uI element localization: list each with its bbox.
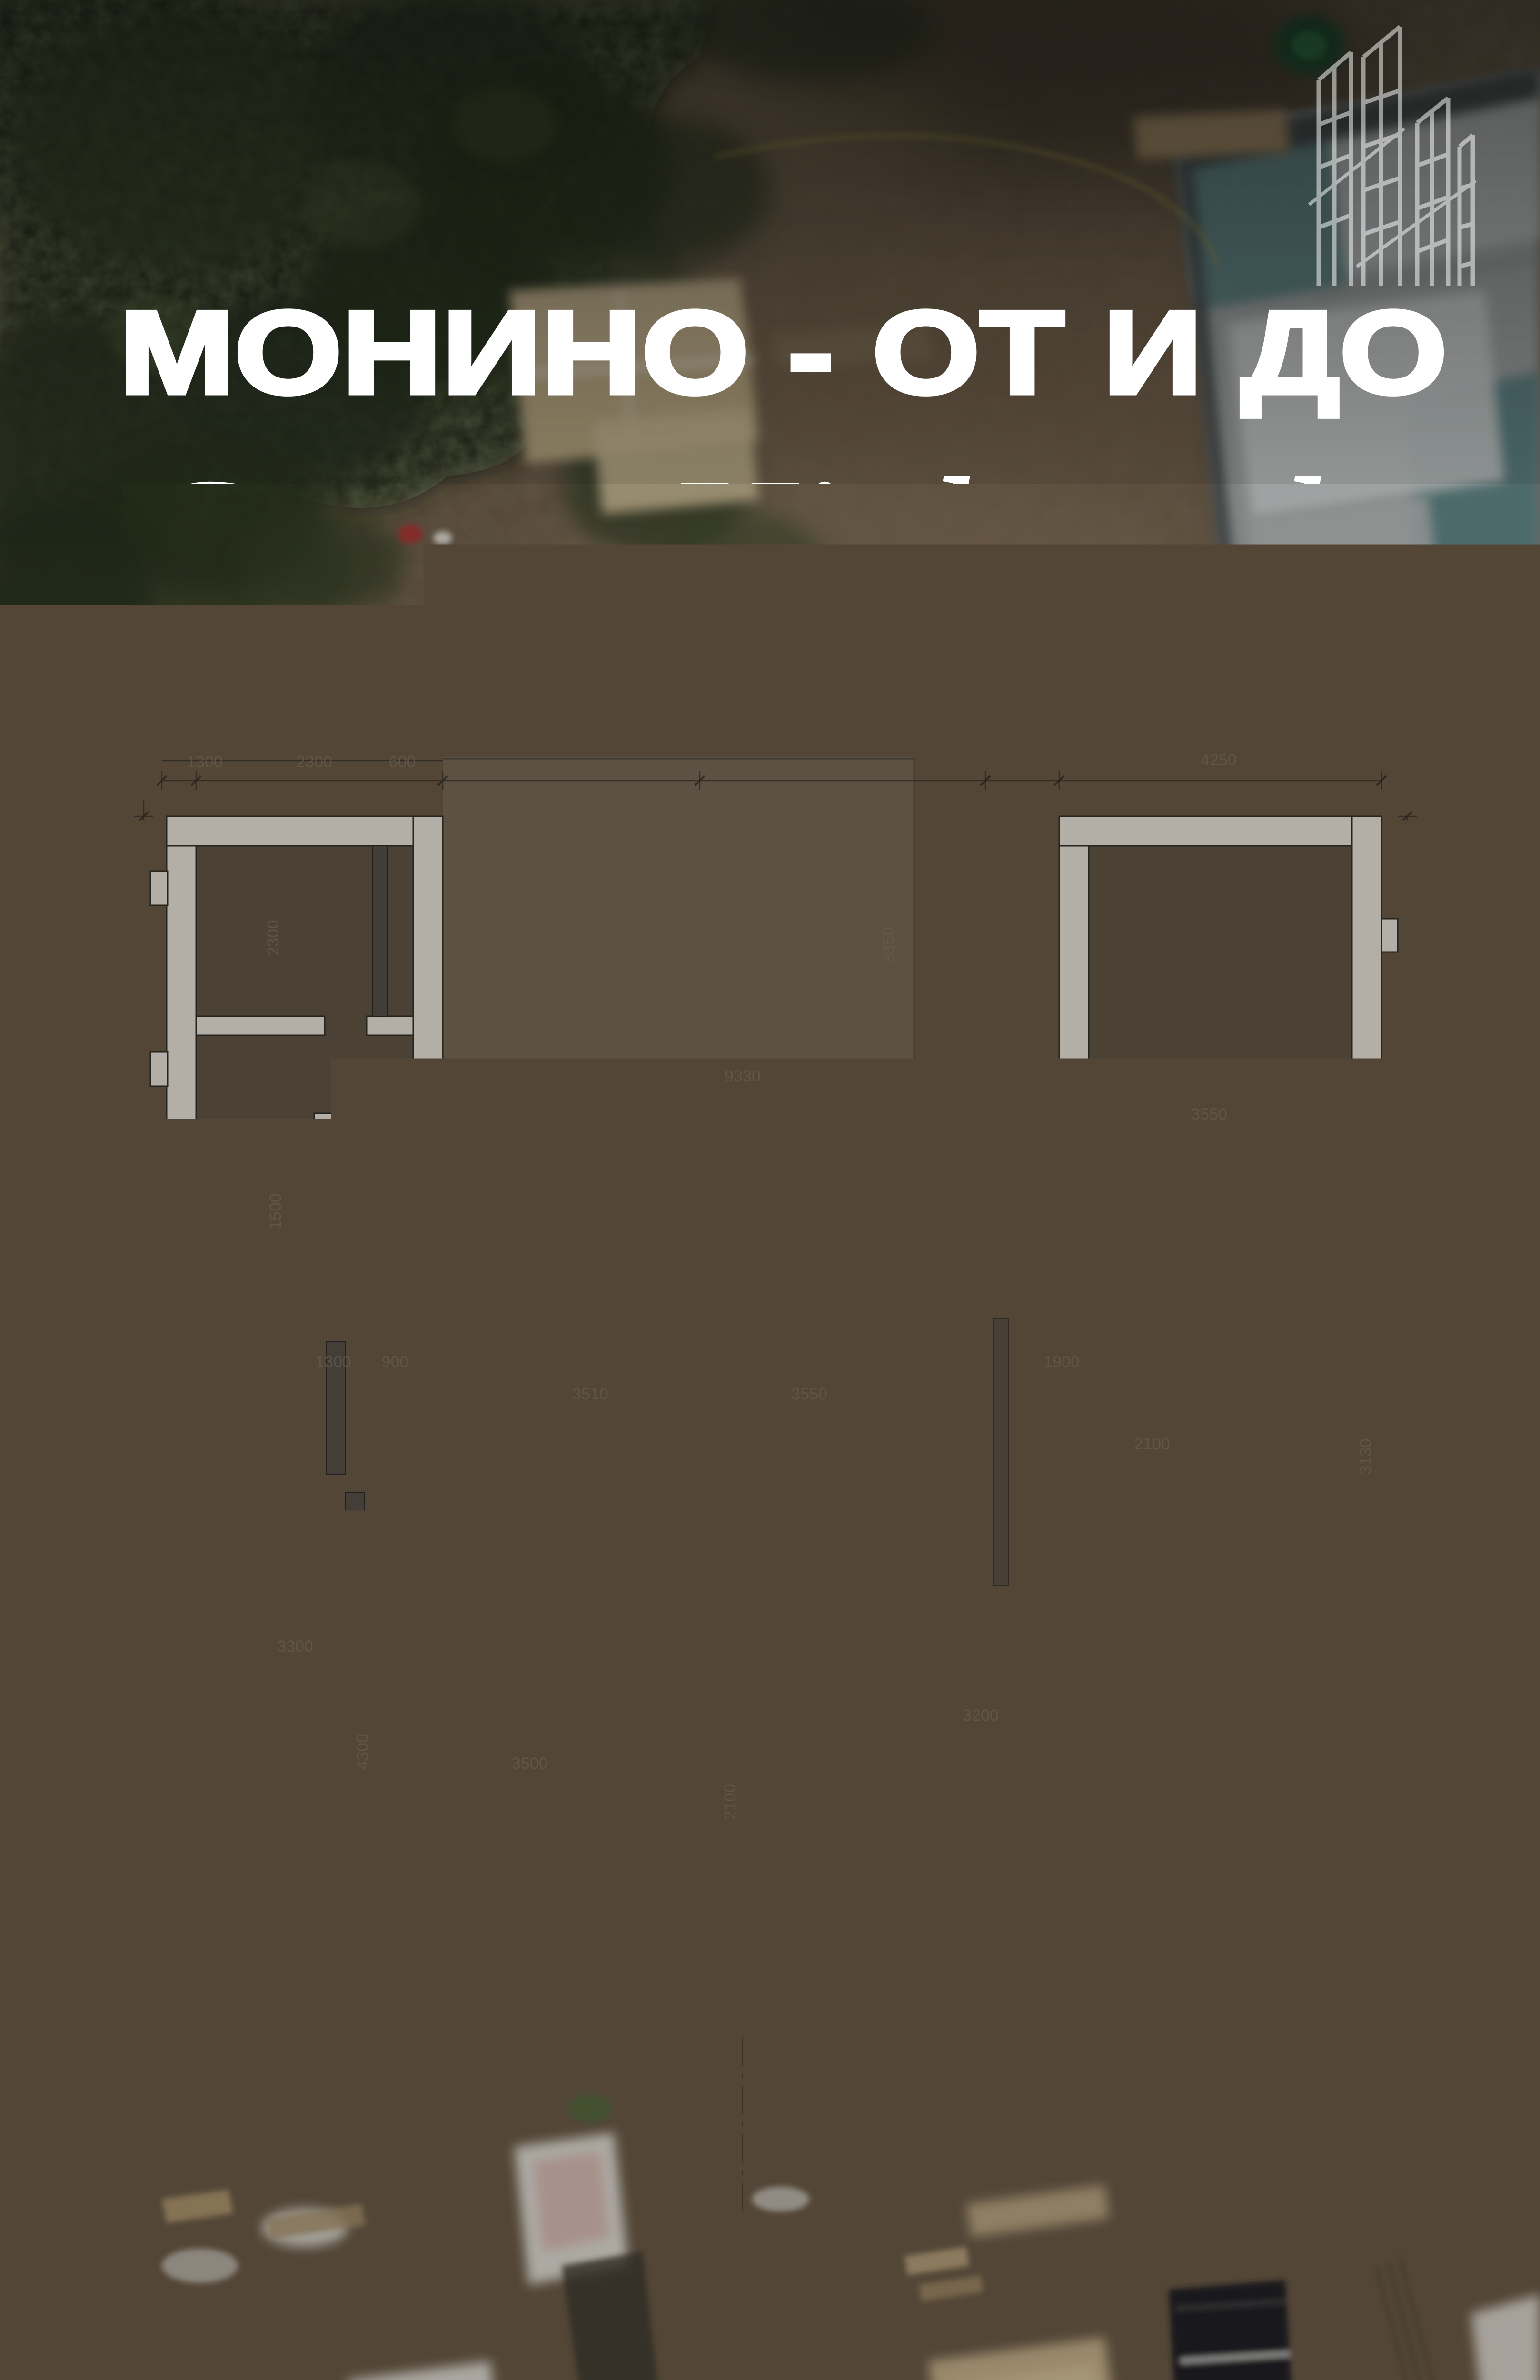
svg-text:whitestonegroup.ru: whitestonegroup.ru	[755, 650, 1385, 748]
svg-text:Стиль High-tech: Стиль High-tech	[129, 444, 1366, 629]
svg-text:МОНИНО - ОТ И ДО: МОНИНО - ОТ И ДО	[119, 286, 1447, 418]
